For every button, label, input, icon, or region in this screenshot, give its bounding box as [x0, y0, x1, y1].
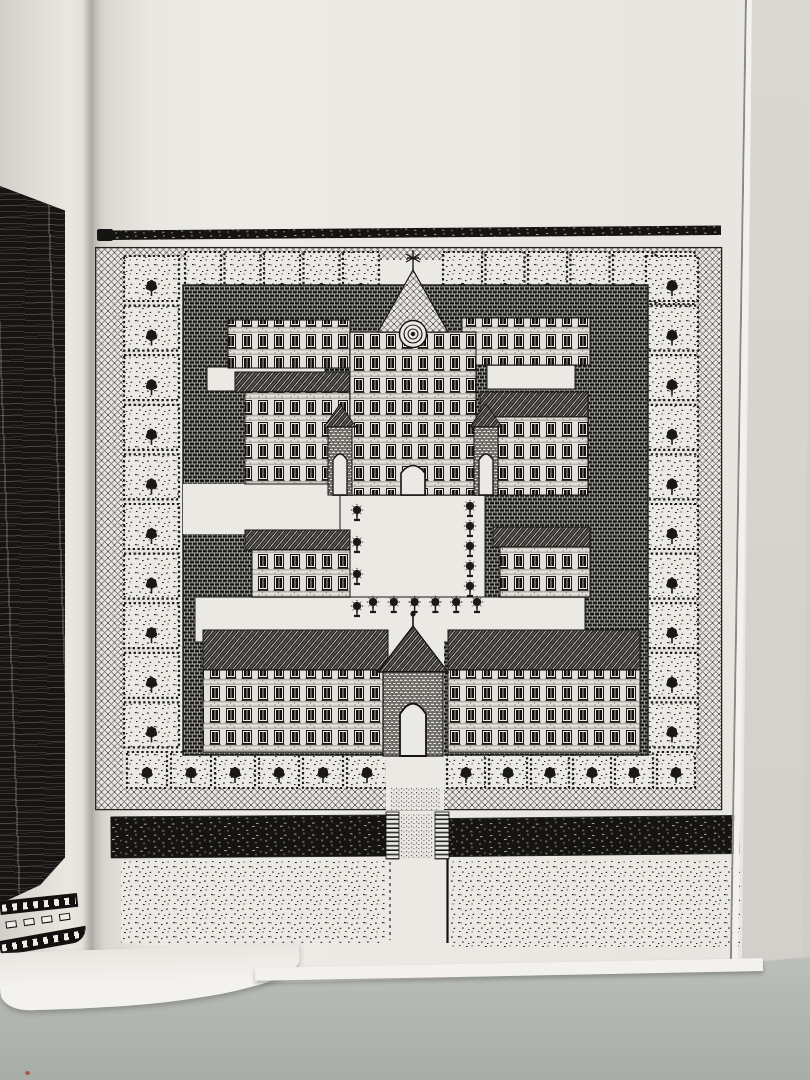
backdrop-strip: [742, 0, 810, 959]
sprocket-holes: [1, 930, 85, 951]
field: [121, 859, 740, 947]
garden-bottom-right: [447, 752, 695, 788]
gate-arch: [400, 704, 426, 757]
town-plan-drawing: [95, 220, 747, 965]
path-crossing: [386, 812, 449, 859]
dash-box: [59, 913, 71, 921]
black-ink-field: [0, 186, 65, 908]
top-rule: [109, 226, 721, 240]
garden-right: [646, 256, 698, 747]
rose-window: [400, 321, 427, 348]
dash-box: [5, 920, 17, 928]
left-page: [0, 0, 92, 1002]
dash-box: [23, 918, 35, 926]
right-page: [92, 0, 762, 1080]
sprocket-holes: [2, 897, 76, 912]
red-speck: [25, 1071, 30, 1075]
alley-top-right: [487, 365, 575, 389]
church-door: [401, 466, 425, 496]
road-paving: [390, 788, 440, 810]
book-gutter-shadow: [82, 0, 102, 1000]
garden-left: [124, 256, 179, 747]
street-mid-left: [183, 484, 341, 534]
photo-of-open-book: [0, 0, 810, 1080]
garden-bottom-left: [127, 752, 387, 788]
dash-box: [41, 915, 53, 923]
